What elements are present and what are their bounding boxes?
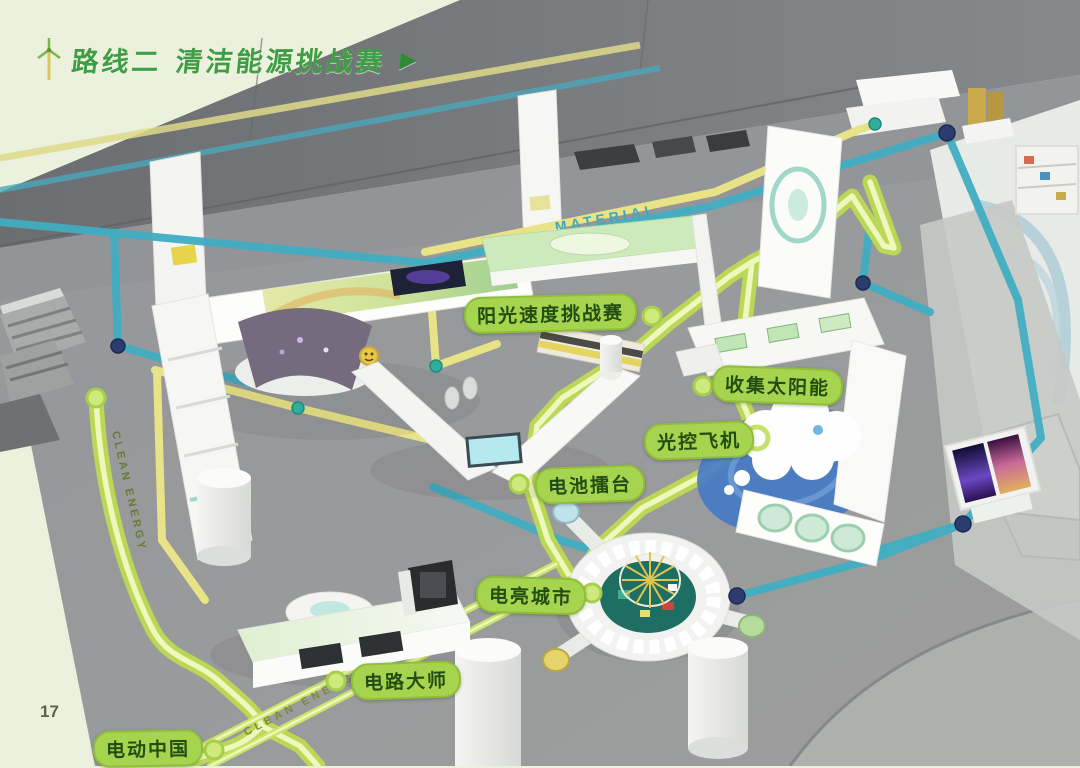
yellow-face-marker [360,347,378,365]
station-label-collect-solar-energy[interactable]: 收集太阳能 [711,365,843,407]
page-header: 路线二 清洁能源挑战赛 ▶ [34,36,417,82]
title-arrow: ▶ [399,46,419,72]
station-label-circuit-master[interactable]: 电路大师 [350,660,461,701]
station-label-electric-china[interactable]: 电动中国 [93,729,204,768]
exhibition-map: MATERIAL CLEAN ENERGY CLEAN ENERGY [0,0,1080,766]
pillar-cylinder [197,468,251,566]
page-title: 路线二 清洁能源挑战赛 ▶ [70,40,419,79]
route-name: 清洁能源挑战赛 [174,40,388,79]
station-label-light-up-city[interactable]: 电亮城市 [476,576,587,616]
route-label: 路线二 [70,40,164,79]
station-label-sunlight-speed-challenge[interactable]: 阳光速度挑战赛 [464,293,638,335]
station-label-light-controlled-plane[interactable]: 光控飞机 [643,420,754,461]
station-label-battery-arena[interactable]: 电池擂台 [534,464,645,505]
wind-turbine-icon [34,36,64,82]
page-number: 17 [40,702,59,722]
